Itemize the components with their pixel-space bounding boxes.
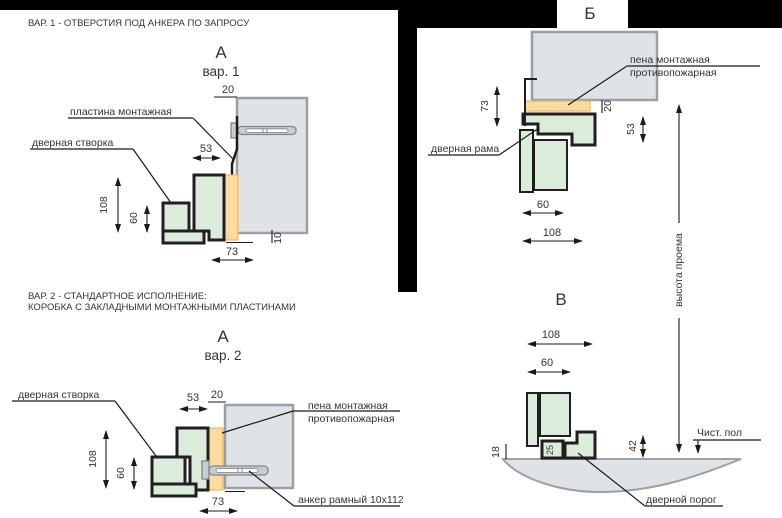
- view-b: пена монтажная противопожарная дверная р…: [428, 32, 760, 452]
- var1-foam: [224, 175, 238, 240]
- var2-anchor-slot: [216, 469, 258, 473]
- viewb-dim-108: 108: [543, 227, 561, 239]
- var1-dim-20: 20: [222, 84, 234, 96]
- var2-dim-20: 20: [211, 389, 223, 401]
- viewb-leaf-strip-wide: [534, 140, 567, 190]
- var1-note: ВАР. 1 - ОТВЕРСТИЯ ПОД АНКЕРА ПО ЗАПРОСУ: [28, 18, 250, 29]
- viewb-dim-20: 20: [602, 100, 614, 112]
- var1-dim-108: 108: [98, 196, 110, 214]
- var1-dim-10: 10: [272, 232, 284, 244]
- viewb-dim-53: 53: [625, 123, 637, 135]
- var2-note-line2: КОРОБКА С ЗАКЛАДНЫМИ МОНТАЖНЫМИ ПЛАСТИНА…: [28, 302, 296, 313]
- viewb-dim-60: 60: [537, 199, 549, 211]
- var1-view-variant: вар. 1: [202, 64, 239, 79]
- var1-leaf-leader: [133, 149, 171, 203]
- var1-door-leaf-upper: [163, 203, 189, 231]
- threshold-label: дверной порог: [646, 494, 717, 506]
- var2-leaf-leader: [115, 401, 156, 456]
- var2-foam-label-2: противопожарная: [308, 413, 395, 425]
- viewb-dim-73: 73: [479, 100, 491, 112]
- viewv-dim-60: 60: [541, 357, 553, 369]
- top-left-black-strip: [0, 0, 400, 10]
- var1-dim-73: 73: [226, 246, 238, 258]
- var2-anchor-label: анкер рамный 10х112: [298, 494, 404, 506]
- var1-dim-60: 60: [128, 212, 140, 224]
- var2-dim-53: 53: [187, 392, 199, 404]
- var2-leaf-label: дверная створка: [18, 389, 100, 401]
- var2-dim-60: 60: [115, 467, 127, 479]
- var2-view-variant: вар. 2: [204, 348, 241, 363]
- viewv-leaf-strip-thin: [527, 393, 538, 446]
- var2-anchor-tab: [202, 461, 209, 479]
- var1-wall: [237, 98, 307, 233]
- var2-door-leaf-upper: [152, 457, 185, 484]
- drawing-canvas: Б ВАР. 1 - ОТВЕРСТИЯ ПОД АНКЕРА ПО ЗАПРО…: [0, 0, 782, 518]
- var1-view-letter: А: [215, 43, 227, 62]
- var1-door-leaf-lower: [163, 231, 204, 243]
- viewv-dim-25: 25: [545, 445, 555, 455]
- var2-dim-108: 108: [87, 450, 99, 468]
- viewv-dim-18: 18: [490, 446, 502, 458]
- viewv-leaf-strip-wide: [540, 393, 570, 436]
- finished-floor-label: Чист. пол: [697, 427, 742, 439]
- viewb-foam-label-1: пена монтажная: [630, 54, 710, 66]
- viewb-foam: [525, 101, 590, 111]
- var1-dim-53: 53: [200, 143, 212, 155]
- var2-dim-73: 73: [212, 496, 224, 508]
- view-v: В 108 60 25 42 18 Чист. пол дверной поро…: [490, 290, 761, 506]
- viewb-foam-label-2: противопожарная: [630, 67, 717, 79]
- view-b-title: Б: [584, 4, 595, 23]
- var2-view-letter: А: [217, 327, 229, 346]
- viewv-dim-42: 42: [627, 440, 639, 452]
- view-a-var1: ВАР. 1 - ОТВЕРСТИЯ ПОД АНКЕРА ПО ЗАПРОСУ…: [28, 18, 307, 260]
- mask-regions: Б: [0, 0, 782, 292]
- var2-foam-label-1: пена монтажная: [308, 400, 388, 412]
- var2-door-leaf-lower: [152, 484, 196, 496]
- vertical-black-bar: [398, 0, 417, 292]
- viewb-frame-label: дверная рама: [431, 143, 499, 155]
- viewv-dim-108: 108: [542, 329, 560, 341]
- var2-note-line1: ВАР. 2 - СТАНДАРТНОЕ ИСПОЛНЕНИЕ:: [28, 291, 207, 302]
- var2-foam: [208, 428, 223, 490]
- view-a-var2: ВАР. 2 - СТАНДАРТНОЕ ИСПОЛНЕНИЕ: КОРОБКА…: [12, 291, 404, 511]
- door-install-drawing: Б ВАР. 1 - ОТВЕРСТИЯ ПОД АНКЕРА ПО ЗАПРО…: [0, 0, 782, 518]
- opening-height-label: высота проема: [673, 233, 685, 307]
- var1-leaf-label: дверная створка: [32, 137, 114, 149]
- var1-plate-label: пластина монтажная: [70, 106, 172, 118]
- view-v-title: В: [555, 290, 566, 309]
